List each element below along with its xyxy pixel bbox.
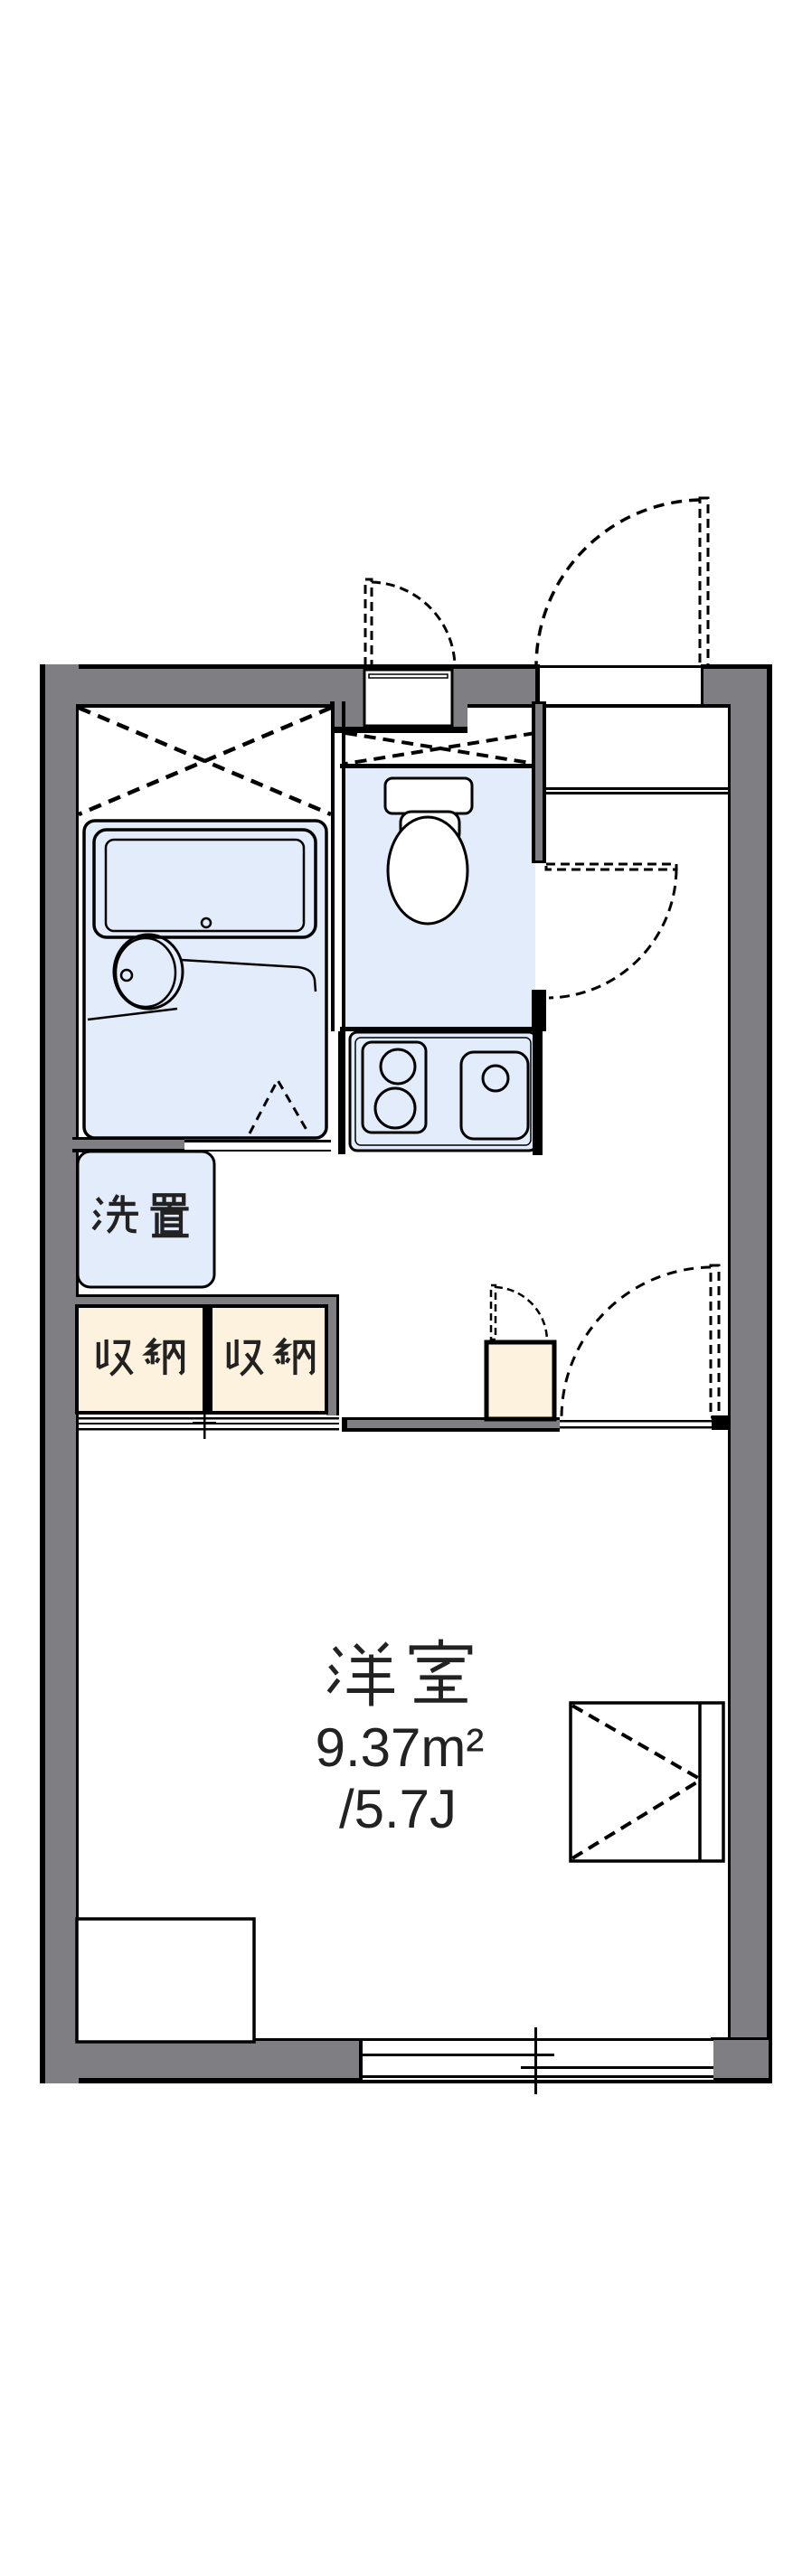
svg-text:/5.7J: /5.7J xyxy=(339,1779,457,1839)
svg-text:9.37m²: 9.37m² xyxy=(316,1717,485,1778)
